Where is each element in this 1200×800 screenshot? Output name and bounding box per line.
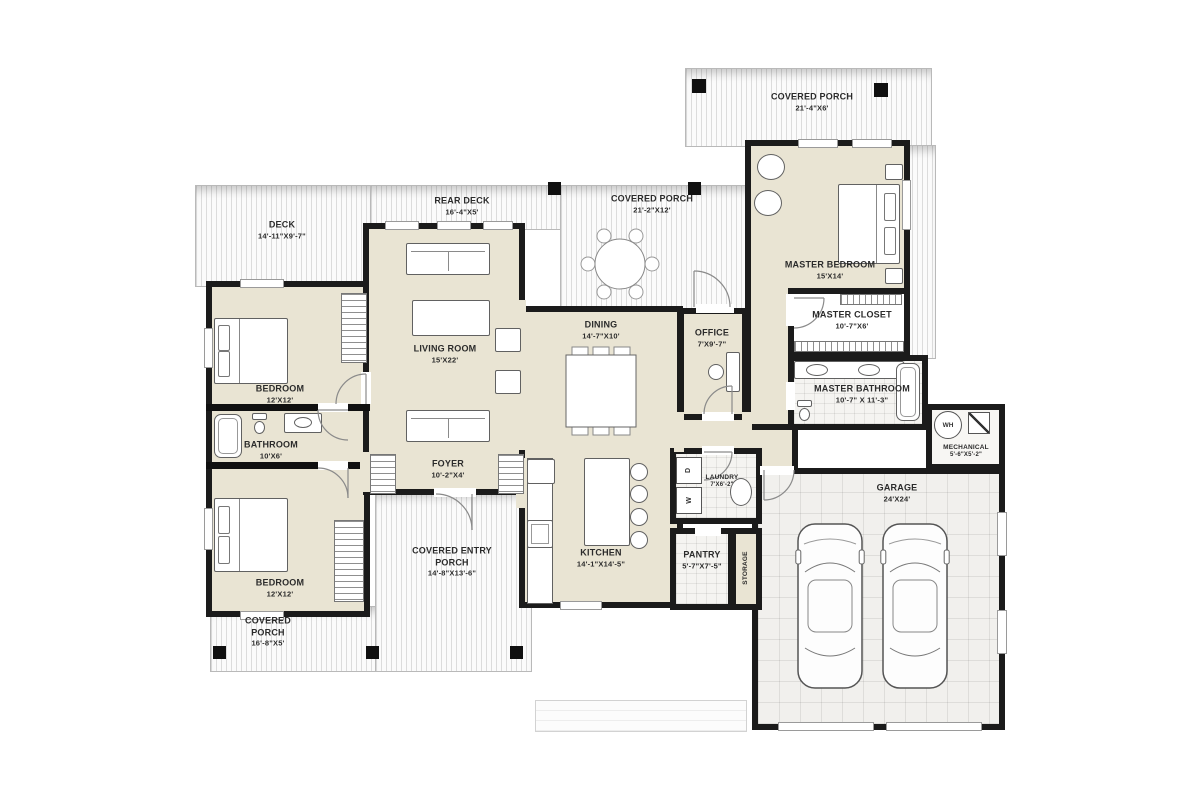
opening-hall xyxy=(674,412,684,452)
bed xyxy=(214,318,288,384)
door-opening-porch xyxy=(696,304,734,313)
desk xyxy=(726,352,740,392)
door-opening-front xyxy=(434,488,476,497)
kitchen-island xyxy=(584,458,630,546)
dining-table xyxy=(552,345,648,437)
pillow xyxy=(218,351,230,377)
pillow xyxy=(884,193,896,221)
window xyxy=(852,139,892,148)
sink xyxy=(294,417,312,428)
pillow xyxy=(884,227,896,255)
window xyxy=(437,221,471,230)
coffee-table xyxy=(412,300,490,336)
room-label-pantry: PANTRY 5'-7"X7'-5" xyxy=(672,549,732,570)
sink xyxy=(858,364,880,376)
area-covered-entry-porch xyxy=(375,492,532,672)
washer: W xyxy=(676,487,702,514)
room-label-dining: DINING 14'-7"X10' xyxy=(551,319,651,340)
room-label-covered-porch-top: COVERED PORCH 21'-2"X12' xyxy=(592,193,712,214)
door-opening-laundry xyxy=(702,446,734,455)
door-opening-office xyxy=(702,412,734,421)
pillow xyxy=(218,536,230,564)
armchair xyxy=(495,328,521,352)
room-label-living-room: LIVING ROOM 15'X22' xyxy=(395,343,495,364)
entry-steps xyxy=(535,700,747,732)
bed-master xyxy=(838,184,900,264)
porch-post xyxy=(548,182,561,195)
room-label-mechanical: MECHANICAL 5'-6"X5'-2" xyxy=(931,444,1001,460)
stool xyxy=(630,485,648,503)
window xyxy=(204,328,213,368)
door-opening-master-bath xyxy=(786,382,795,410)
washer-label: W xyxy=(685,497,692,504)
electrical-panel xyxy=(968,412,990,434)
refrigerator xyxy=(527,459,555,484)
window xyxy=(997,512,1007,556)
window xyxy=(997,610,1007,654)
window xyxy=(240,279,284,288)
car xyxy=(795,520,865,692)
closet-rod xyxy=(840,294,902,305)
door-opening-bedroom1 xyxy=(361,372,371,404)
stove-inner xyxy=(531,524,549,544)
bed xyxy=(214,498,288,572)
door-opening-bedroom2 xyxy=(318,461,348,470)
blanket-line xyxy=(876,185,877,263)
porch-post xyxy=(510,646,523,659)
opening-master-hall xyxy=(742,412,752,432)
armchair xyxy=(495,370,521,394)
room-label-rear-deck: REAR DECK 16'-4"X5' xyxy=(407,195,517,216)
blanket-line xyxy=(239,499,240,571)
room-label-deck: DECK 14'-11"X9'-7" xyxy=(227,219,337,240)
door-opening-garage xyxy=(760,466,794,475)
room-garage xyxy=(752,468,1005,730)
room-label-bathroom: BATHROOM 10'X6' xyxy=(226,439,316,460)
stool xyxy=(630,508,648,526)
porch-post xyxy=(213,646,226,659)
room-label-kitchen: KITCHEN 14'-1"X14'-5" xyxy=(551,547,651,568)
room-label-covered-porch-right: COVERED PORCH 21'-4"X6' xyxy=(752,91,872,112)
window xyxy=(560,601,602,610)
room-label-covered-porch-bottom: COVERED PORCH 16'-8"X5' xyxy=(228,615,308,648)
room-label-laundry: LAUNDRY 7'X6'-2" xyxy=(697,474,747,490)
room-label-master-closet: MASTER CLOSET 10'-7"X6' xyxy=(792,309,912,330)
room-label-master-bathroom: MASTER BATHROOM 10'-7" X 11'-3" xyxy=(807,383,917,404)
toilet-tank xyxy=(252,413,267,420)
room-label-master-bedroom: MASTER BEDROOM 15'X14' xyxy=(770,259,890,280)
room-label-bedroom-1: BEDROOM 12'X12' xyxy=(235,383,325,404)
room-label-covered-entry-porch: COVERED ENTRY PORCH 14'-8"X13'-6" xyxy=(409,545,495,578)
window xyxy=(385,221,419,230)
room-label-foyer: FOYER 10'-2"X4' xyxy=(413,458,483,479)
porch-post xyxy=(366,646,379,659)
patio-table xyxy=(578,222,662,306)
closet xyxy=(341,293,367,363)
foyer-closet xyxy=(498,454,524,494)
desk-chair xyxy=(708,364,724,380)
foyer-closet xyxy=(370,454,396,494)
porch-post xyxy=(874,83,888,97)
room-label-bedroom-2: BEDROOM 12'X12' xyxy=(235,577,325,598)
sofa xyxy=(406,410,490,442)
door-opening-pantry xyxy=(695,526,721,536)
window xyxy=(902,180,911,230)
stool xyxy=(630,463,648,481)
closet-rod xyxy=(794,341,904,352)
pillow xyxy=(218,325,230,351)
car xyxy=(880,520,950,692)
garage-door xyxy=(886,722,982,731)
pillow xyxy=(218,506,230,534)
garage-door xyxy=(778,722,874,731)
sink xyxy=(806,364,828,376)
dryer-label: D xyxy=(686,468,693,473)
sofa xyxy=(406,243,490,275)
floor-plan: WH D W xyxy=(0,0,1200,800)
window xyxy=(204,508,213,550)
window xyxy=(483,221,513,230)
lounge-chair xyxy=(757,154,785,180)
blanket-line xyxy=(239,319,240,383)
toilet xyxy=(254,421,265,434)
water-heater: WH xyxy=(934,411,962,439)
room-label-office: OFFICE 7'X9'-7" xyxy=(677,327,747,348)
room-label-garage: GARAGE 24'X24' xyxy=(852,482,942,503)
porch-post xyxy=(692,79,706,93)
room-label-storage: STORAGE xyxy=(742,538,750,598)
closet xyxy=(334,520,364,602)
window xyxy=(798,139,838,148)
stove xyxy=(527,520,553,548)
toilet xyxy=(799,408,810,421)
water-heater-label: WH xyxy=(943,422,954,429)
lounge-chair xyxy=(754,190,782,216)
nightstand xyxy=(885,164,903,180)
